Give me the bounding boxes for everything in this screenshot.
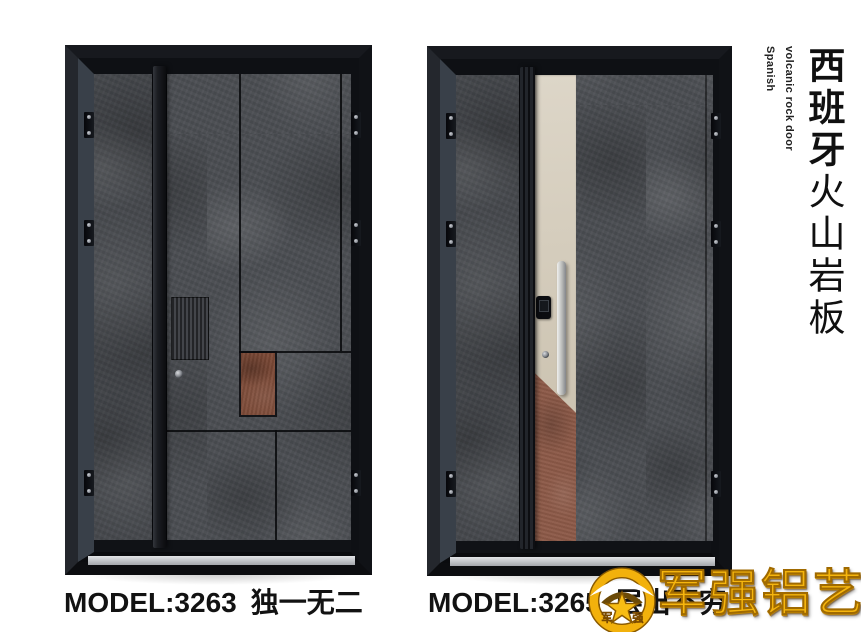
panel-seam-vertical [275,430,277,540]
brand-emblem-icon: 军 强 [585,564,659,632]
hinge-icon [351,112,361,138]
hinge-icon [711,471,721,497]
model-label-3263: MODEL:3263独一无二 [64,581,363,621]
door-bottom-rail [94,540,351,552]
model-number: MODEL:3265 [428,587,601,618]
hinge-icon [351,220,361,246]
brand-logo: 军 强 军强铝艺 [585,562,861,632]
brand-wordmark: 军强铝艺 [657,566,861,621]
door-image-3265 [427,46,732,576]
hinge-icon [446,221,456,247]
hinge-icon [84,220,94,246]
pull-handle [557,261,566,395]
panel-seam-vertical [340,74,342,351]
poster-canvas: MODEL:3263独一无二 MODEL:3265层出不穷 Spanish vo… [0,0,861,632]
panel-seam-vertical [239,74,241,353]
door-bottom-rail [456,541,711,553]
hinge-icon [84,112,94,138]
side-leaf-panel [456,75,519,541]
smart-lock [536,296,551,319]
panel-seam-horizontal [153,430,351,432]
main-leaf-panel [576,75,713,541]
side-leaf-panel [94,74,152,540]
door-image-3263 [65,45,372,575]
door-leaves [94,74,351,552]
series-title-en-line2: volcanic rock door [779,46,798,206]
series-title-zh-regular: 火山岩板 [803,172,844,340]
door-leaves [456,75,711,553]
series-title-en-line1: Spanish [760,46,779,206]
keyhole-icon [175,370,183,378]
keyhole-icon [542,351,549,358]
handle-bar [520,67,535,549]
lock-reader-window [539,300,549,312]
model-name: 独一无二 [251,587,363,618]
textured-lock-plate [171,297,209,360]
emblem-left-char: 军 [601,612,612,625]
series-title: Spanish volcanic rock door 西班牙火山岩板 [760,46,843,340]
hinge-icon [84,470,94,496]
door-threshold [88,556,355,565]
series-title-chinese: 西班牙火山岩板 [805,46,842,340]
model-number: MODEL:3263 [64,587,237,618]
leaf-edge-seam [705,75,707,541]
hinge-icon [711,113,721,139]
rust-accent-panel [241,353,275,415]
hinge-icon [351,470,361,496]
series-title-english: Spanish volcanic rock door [760,46,799,206]
hinge-icon [446,113,456,139]
handle-bar [153,66,166,548]
series-title-zh-bold: 西班牙 [803,46,844,172]
emblem-right-char: 强 [632,612,643,625]
hinge-icon [446,471,456,497]
hinge-icon [711,221,721,247]
champagne-strip [535,75,576,541]
